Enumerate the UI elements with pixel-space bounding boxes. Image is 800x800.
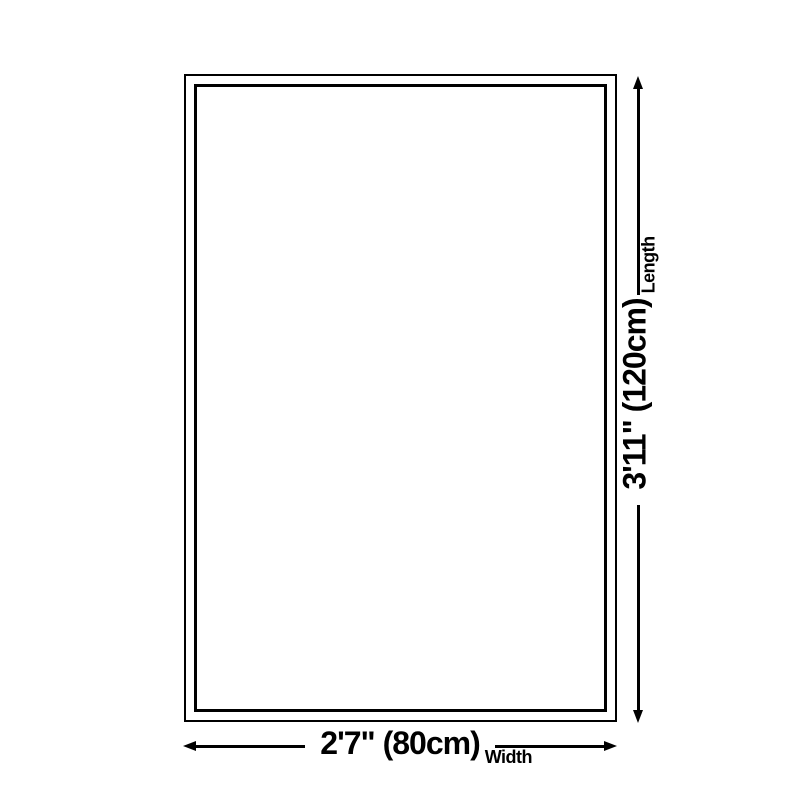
arrow-right-icon [604, 741, 617, 751]
length-value: 3'11" (120cm) [617, 298, 653, 489]
length-label-rotated: 3'11" (120cm) Length [619, 283, 658, 504]
width-label: Width [485, 748, 532, 766]
length-label: Length [640, 236, 658, 293]
width-dimension-label: 2'7" (80cm) Width [305, 727, 494, 766]
rug-outline-outer [184, 74, 617, 722]
rug-outline-inner [194, 84, 607, 712]
length-label-area: 3'11" (120cm) Length [621, 283, 655, 505]
width-dimension: 2'7" (80cm) Width [183, 724, 617, 768]
width-dimension-line-left [194, 745, 305, 748]
size-diagram: 3'11" (120cm) Length 2'7" (80cm) Width [0, 0, 800, 800]
length-dimension-line-bottom [637, 505, 640, 713]
width-value: 2'7" (80cm) [320, 725, 479, 761]
arrow-down-icon [633, 710, 643, 723]
length-dimension-label: 3'11" (120cm) Length [619, 283, 658, 504]
length-dimension: 3'11" (120cm) Length [613, 76, 663, 723]
